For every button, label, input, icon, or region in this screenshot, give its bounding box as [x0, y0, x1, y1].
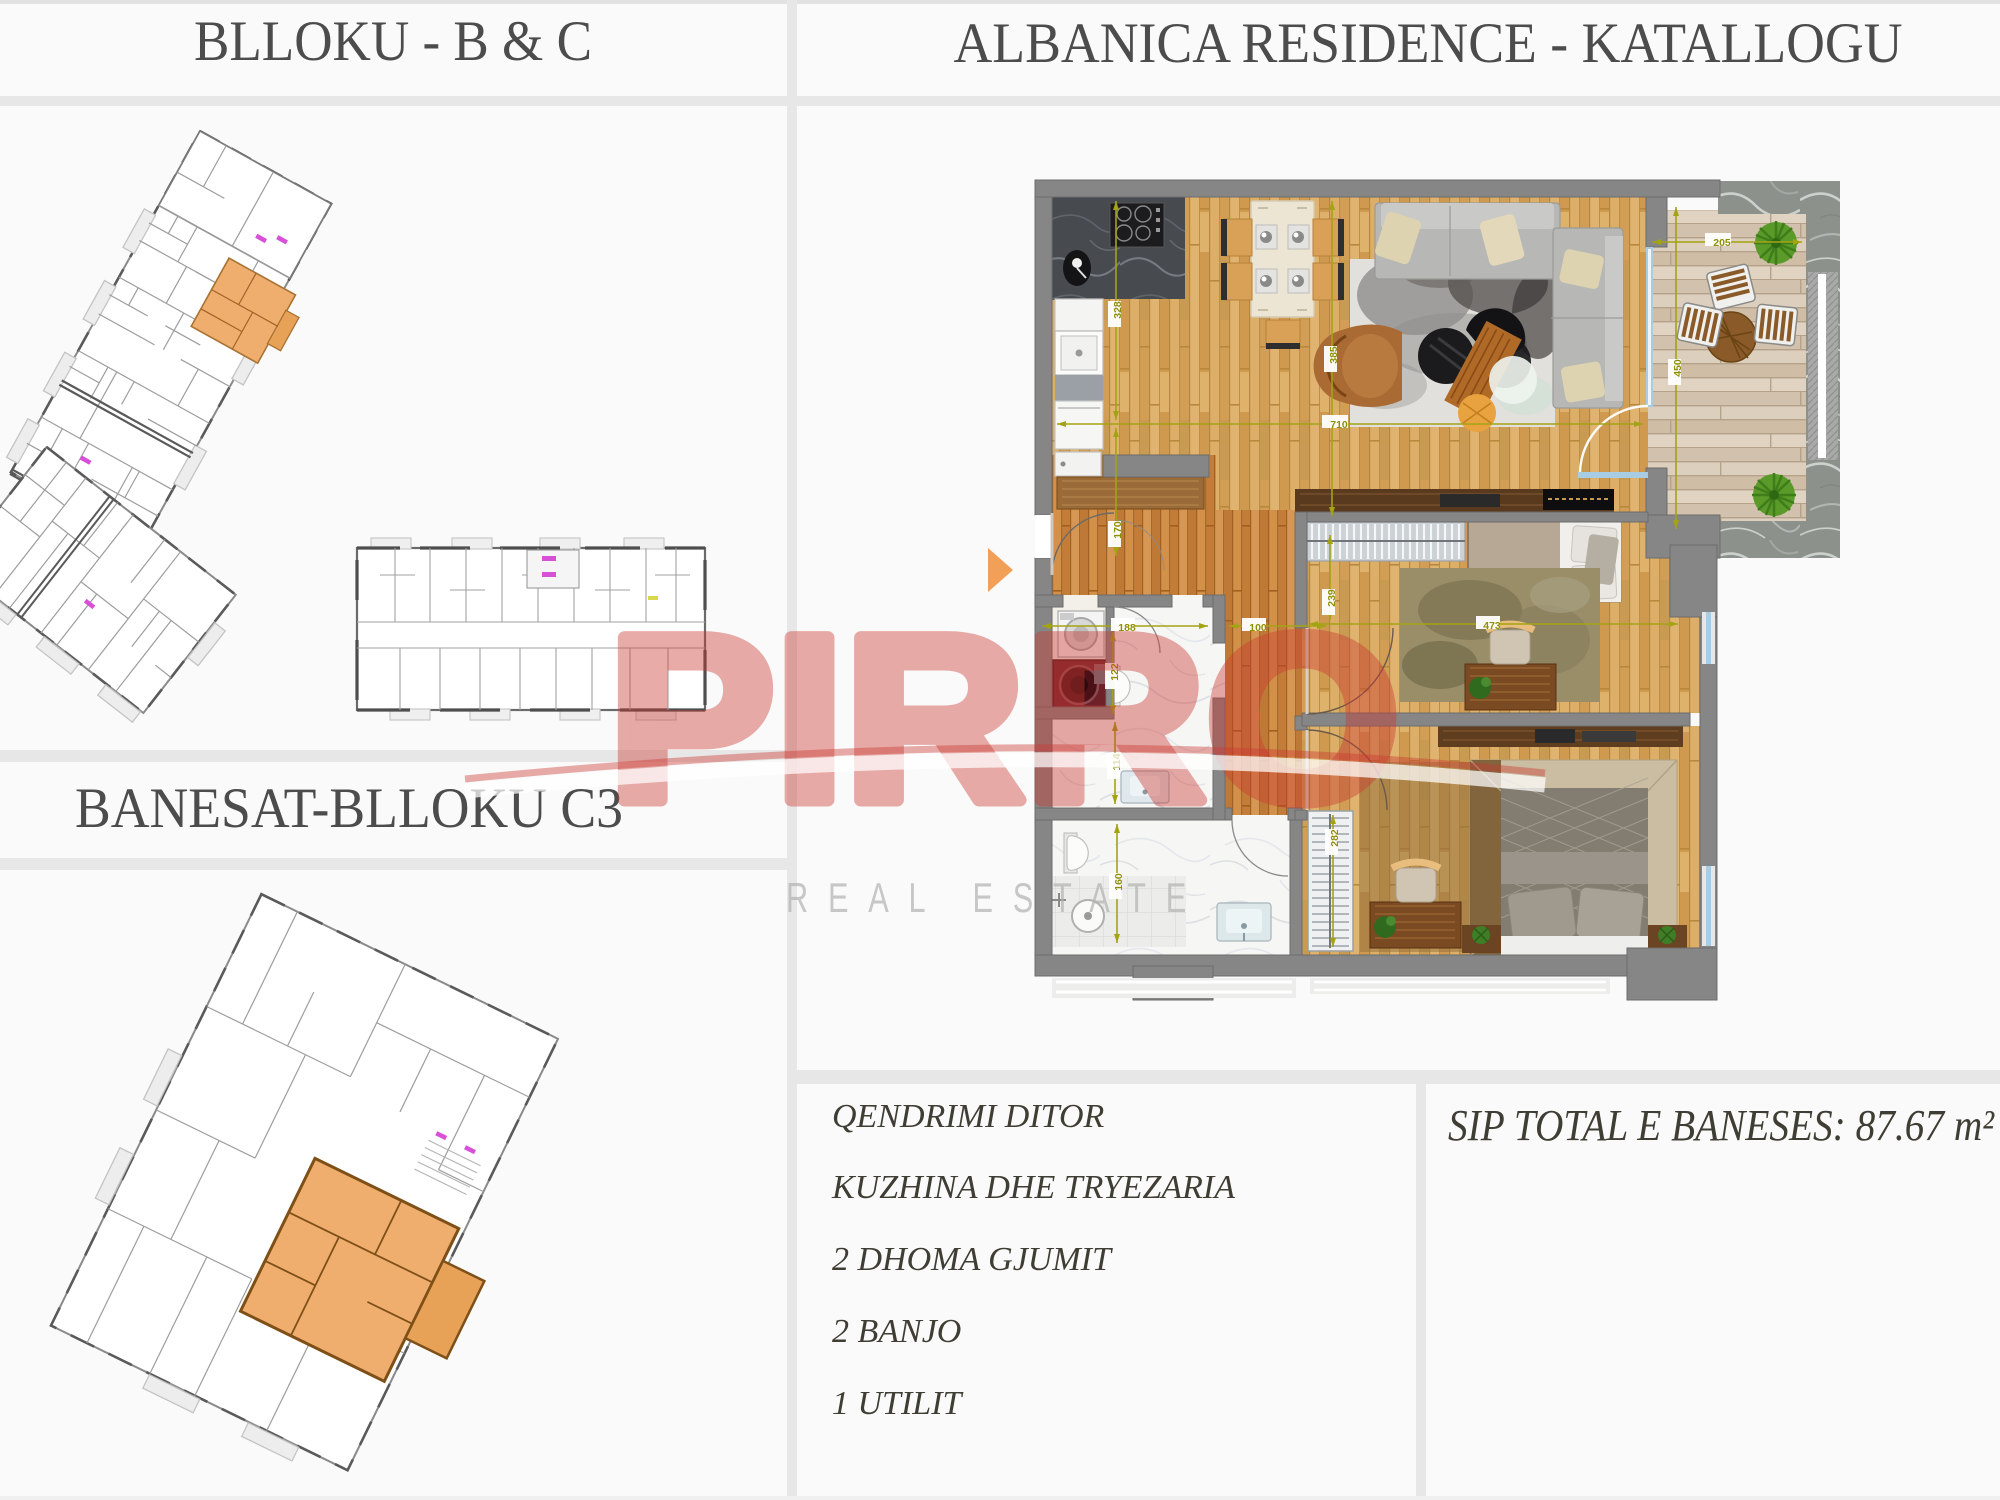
svg-text:KUZHINA DHE TRYEZARIA: KUZHINA DHE TRYEZARIA — [831, 1169, 1235, 1206]
svg-text:328: 328 — [1112, 301, 1124, 319]
svg-text:450: 450 — [1672, 359, 1684, 377]
svg-text:473: 473 — [1483, 620, 1501, 632]
svg-text:ALBANICA RESIDENCE - KATALLOGU: ALBANICA RESIDENCE - KATALLOGU — [954, 12, 1903, 75]
svg-text:REAL ESTATE: REAL ESTATE — [786, 874, 1206, 921]
svg-text:QENDRIMI DITOR: QENDRIMI DITOR — [832, 1098, 1105, 1135]
svg-text:385: 385 — [1328, 346, 1340, 364]
svg-text:BLLOKU - B & C: BLLOKU - B & C — [194, 10, 592, 73]
svg-text:1 UTILIT: 1 UTILIT — [832, 1385, 964, 1422]
svg-text:170: 170 — [1112, 521, 1124, 539]
svg-text:710: 710 — [1330, 419, 1348, 431]
svg-text:205: 205 — [1713, 237, 1731, 249]
svg-text:PIRRO: PIRRO — [608, 587, 1400, 851]
svg-text:2 BANJO: 2 BANJO — [832, 1313, 961, 1350]
svg-text:2 DHOMA GJUMIT: 2 DHOMA GJUMIT — [832, 1241, 1113, 1278]
svg-text:SIP TOTAL E BANESES: 87.67 m²: SIP TOTAL E BANESES: 87.67 m² — [1448, 1101, 1995, 1150]
